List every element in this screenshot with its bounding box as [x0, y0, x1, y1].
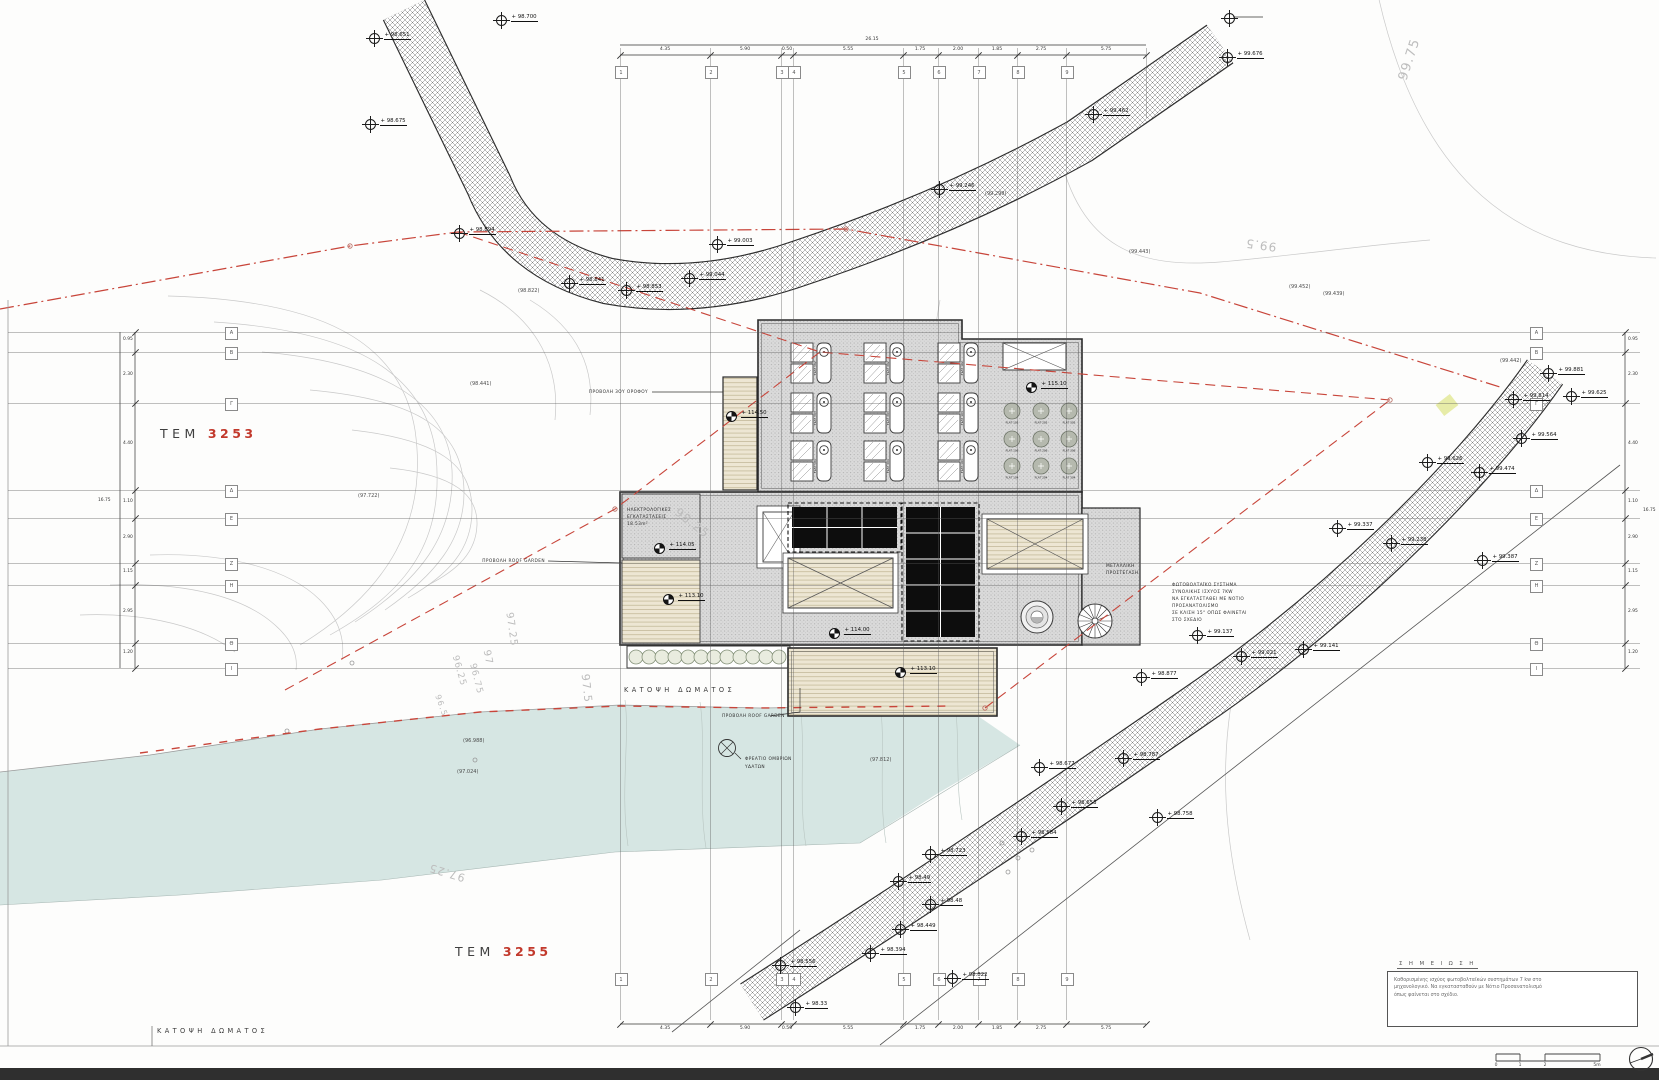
- benchmark-label: + 114.50: [741, 410, 768, 418]
- spot-elevation-marker: + 99.881: [1543, 368, 1554, 379]
- annotation-label: ΗΛΕΚΤΡΟΛΟΓΙΚΕΣ: [627, 508, 671, 513]
- pv-annotation-line: ΣΕ ΚΛΙΣΗ 15° ΟΠΩΣ ΦΑΙΝΕΤΑΙ: [1172, 611, 1247, 616]
- spot-elevation-marker: + 98.584: [1016, 831, 1027, 842]
- dimension-label: 1.15: [123, 569, 133, 574]
- spot-elevation-marker: + 98.49: [893, 876, 904, 887]
- dimension-label: 4.40: [123, 441, 133, 446]
- spot-elevation-label: + 99.676: [1237, 51, 1264, 59]
- parcel-prefix: ΤΕΜ: [455, 944, 495, 959]
- spot-elevation-label: + 99.625: [1581, 390, 1608, 398]
- ground-elevation-label: (98.822): [518, 288, 539, 294]
- dimension-total-label: 16.75: [98, 498, 111, 503]
- grid-row-bubble: Β: [225, 347, 238, 360]
- dimension-label: 0.95: [1628, 337, 1638, 342]
- grid-row-bubble: Δ: [1530, 485, 1543, 498]
- spot-elevation-label: + 98.787: [1133, 752, 1160, 760]
- spot-elevation-marker: + 98.894: [454, 228, 465, 239]
- spot-elevation-label: + 98.449: [910, 923, 937, 931]
- dimension-label: 2.30: [1628, 372, 1638, 377]
- dimension-label: 4.35: [660, 47, 670, 52]
- dimension-label: 1.10: [123, 499, 133, 504]
- grid-row-line: [8, 563, 1640, 564]
- annotation-label: ΠΡΟΒΟΛΗ ROOF GARDEN: [722, 714, 785, 719]
- ground-elevation-label: (96.988): [463, 738, 484, 744]
- grid-row-line: [8, 585, 1640, 586]
- spot-elevation-label: + 98.853: [636, 284, 663, 292]
- spot-elevation-label: + 99.238: [1401, 537, 1428, 545]
- grid-row-line: [8, 490, 1640, 491]
- grid-row-bubble: Ζ: [225, 558, 238, 571]
- spot-elevation-marker: + 99.337: [1332, 523, 1343, 534]
- contour-label: 96.25: [450, 654, 468, 687]
- grid-column-line: [1017, 48, 1018, 1020]
- parcel-prefix: ΤΕΜ: [160, 426, 200, 441]
- spot-elevation-marker: + 99.003: [712, 239, 723, 250]
- spot-elevation-marker: + 99.462: [1088, 109, 1099, 120]
- spot-elevation-marker: + 98.33: [790, 1002, 801, 1013]
- grid-column-line: [620, 48, 621, 1020]
- grid-row-line: [8, 518, 1640, 519]
- spot-elevation-label: + 98.394: [880, 947, 907, 955]
- dimension-label: 2.30: [123, 372, 133, 377]
- grid-row-bubble: Ε: [1530, 513, 1543, 526]
- spot-elevation-label: + 99.387: [1492, 554, 1519, 562]
- plan-title: ΚΑΤΟΨΗ ΔΩΜΑΤΟΣ: [624, 686, 735, 694]
- note-line: μηχανολογικό. Να εγκατασταθούν με Νότιο …: [1394, 984, 1631, 991]
- grid-row-bubble: Α: [1530, 327, 1543, 340]
- dimension-label: 2.00: [953, 1026, 963, 1031]
- spot-elevation-label: + 98.653: [1071, 800, 1098, 808]
- spot-elevation-label: + 99.137: [1207, 629, 1234, 637]
- labels-overlay: 112233445566778899ΑΑΒΒΓΓΔΔΕΕΖΖΗΗΘΘΙΙ4.35…: [0, 0, 1659, 1080]
- dimension-label: 5.55: [843, 47, 853, 52]
- spot-elevation-marker: + 99.474: [1474, 467, 1485, 478]
- grid-row-line: [8, 332, 1640, 333]
- spot-elevation-label: + 98.822: [962, 972, 989, 980]
- grid-column-bubble: 9: [1061, 973, 1074, 986]
- annotation-label: ΦΡΕΑΤΙΟ ΟΜΒΡΙΩΝ: [745, 757, 792, 762]
- spot-elevation-label: + 99.626: [1437, 456, 1464, 464]
- spot-elevation-marker: + 99.137: [1192, 630, 1203, 641]
- grid-column-bubble: 4: [788, 973, 801, 986]
- ground-elevation-label: (99.443): [1129, 249, 1150, 255]
- spot-elevation-label: + 98.48: [940, 898, 964, 906]
- pv-annotation-line: ΦΩΤΟΒΟΛΤΑΪΚΟ ΣΥΣΤΗΜΑ: [1172, 583, 1237, 588]
- grid-column-bubble: 1: [615, 973, 628, 986]
- spot-elevation-label: + 98.700: [511, 14, 538, 22]
- spot-elevation-label: + 98.49: [908, 875, 932, 883]
- annotation-label: ΠΡΟΣΤΕΓΑΣΗ: [1106, 571, 1139, 576]
- ground-elevation-label: (99.442): [1500, 358, 1521, 364]
- spot-elevation-marker: + 98.394: [865, 948, 876, 959]
- spot-elevation-marker: + 99.814: [1508, 394, 1519, 405]
- dimension-label: 1.75: [915, 1026, 925, 1031]
- grid-row-bubble: Ι: [225, 663, 238, 676]
- dimension-label: 2.95: [123, 609, 133, 614]
- note-line: Καθορισμένης ισχύος φωτοβολταϊκών συστημ…: [1394, 977, 1631, 984]
- grid-column-line: [1146, 48, 1147, 118]
- grid-row-bubble: Η: [225, 580, 238, 593]
- dimension-label: 5.90: [740, 47, 750, 52]
- pv-annotation-line: ΣΥΝΟΛΙΚΗΣ ΙΣΧΥΟΣ 7KW: [1172, 590, 1233, 595]
- contour-label: 97: [481, 649, 495, 666]
- grid-row-bubble: Θ: [1530, 638, 1543, 651]
- spot-elevation-marker: + 98.700: [496, 15, 507, 26]
- spot-elevation-marker: + 98.723: [925, 849, 936, 860]
- grid-column-line: [1066, 48, 1067, 1020]
- benchmark-marker: + 115.10: [1026, 382, 1037, 393]
- spot-elevation-label: + 99.003: [727, 238, 754, 246]
- grid-column-bubble: 5: [898, 66, 911, 79]
- spot-elevation-marker: + 98.841: [564, 278, 575, 289]
- ground-elevation-label: (99.439): [1323, 291, 1344, 297]
- spot-elevation-label: + 98.894: [469, 227, 496, 235]
- dimension-label: 5.55: [843, 1026, 853, 1031]
- spot-elevation-label: + 99.462: [1103, 108, 1130, 116]
- grid-column-bubble: 8: [1012, 973, 1025, 986]
- spot-elevation-marker: + 98.675: [365, 119, 376, 130]
- dim-tick: [707, 1021, 714, 1028]
- spot-elevation-label: + 99.474: [1489, 466, 1516, 474]
- grid-column-line: [978, 48, 979, 1020]
- note-title: Σ Η Μ Ε Ι Ω Σ Η: [1397, 961, 1478, 969]
- grid-row-bubble: Θ: [225, 638, 238, 651]
- grid-row-bubble: Ζ: [1530, 558, 1543, 571]
- dimension-label: 4.40: [1628, 441, 1638, 446]
- spot-elevation-label: + 98.675: [380, 118, 407, 126]
- note-line: όπως φαίνεται στο σχέδιο.: [1394, 992, 1631, 999]
- scale-tick-label: 5m: [1593, 1063, 1600, 1068]
- pv-annotation-line: ΠΡΟΣΑΝΑΤΟΛΙΣΜΟ: [1172, 604, 1219, 609]
- contour-label: 99.75: [1396, 37, 1424, 83]
- spot-elevation-marker: + 98.556: [775, 960, 786, 971]
- spot-elevation-label: + 98.556: [790, 959, 817, 967]
- spot-elevation-marker: + 99.238: [1386, 538, 1397, 549]
- note-box: Σ Η Μ Ε Ι Ω Σ Η Καθορισμένης ισχύος φωτο…: [1387, 950, 1638, 1027]
- spot-elevation-marker: + 99.021: [1236, 651, 1247, 662]
- grid-column-line: [710, 48, 711, 1020]
- dimension-label: 1.20: [123, 650, 133, 655]
- benchmark-marker: + 113.10: [663, 594, 674, 605]
- annotation-label: ΠΡΟΒΟΛΗ ROOF GARDEN: [482, 559, 545, 564]
- spot-elevation-label: + 98.677: [1049, 761, 1076, 769]
- grid-column-line: [793, 48, 794, 1020]
- spot-elevation-label: + 99.881: [1558, 367, 1585, 375]
- spot-elevation-label: + 98.723: [940, 848, 967, 856]
- contour-label: 96.5: [433, 693, 449, 717]
- annotation-label: 18.53m²: [627, 522, 648, 527]
- benchmark-label: + 115.10: [1041, 381, 1068, 389]
- contour-label: 97.5: [579, 673, 595, 703]
- scale-tick-label: 1: [1519, 1063, 1522, 1068]
- spot-elevation-label: + 99.246: [949, 183, 976, 191]
- spot-elevation-label: + 99.337: [1347, 522, 1374, 530]
- grid-column-bubble: 6: [933, 973, 946, 986]
- dim-tick: [935, 1021, 942, 1028]
- grid-row-line: [8, 352, 1640, 353]
- benchmark-label: + 113.10: [678, 593, 705, 601]
- spot-elevation-marker: [1224, 13, 1235, 24]
- spot-elevation-label: + 98.651: [384, 32, 411, 40]
- dimension-label: 1.20: [1628, 650, 1638, 655]
- dimension-total-label: 16.75: [1643, 508, 1656, 513]
- dim-tick: [975, 1021, 982, 1028]
- annotation-label: ΕΓΚΑΤΑΣΤΑΣΕΙΣ: [627, 515, 666, 520]
- spot-elevation-marker: + 99.141: [1298, 644, 1309, 655]
- spot-elevation-label: + 98.877: [1151, 671, 1178, 679]
- grid-row-bubble: Α: [225, 327, 238, 340]
- annotation-label: ΜΕΤΑΛΛΙΚΗ: [1106, 564, 1135, 569]
- parcel-number: 3253: [208, 426, 257, 441]
- dimension-label: 2.90: [123, 535, 133, 540]
- ground-elevation-label: (99.299): [985, 191, 1006, 197]
- spot-elevation-marker: + 98.48: [925, 899, 936, 910]
- spot-elevation-label: + 99.814: [1523, 393, 1550, 401]
- grid-row-bubble: Β: [1530, 347, 1543, 360]
- grid-column-line: [781, 48, 782, 1020]
- dimension-label: 1.15: [1628, 569, 1638, 574]
- spot-elevation-marker: + 99.625: [1566, 391, 1577, 402]
- annotation-label: ΠΡΟΒΟΛΗ 3ΟΥ ΟΡΟΦΟΥ: [589, 390, 648, 395]
- dimension-label: 2.90: [1628, 535, 1638, 540]
- grid-column-bubble: 1: [615, 66, 628, 79]
- benchmark-marker: + 114.00: [829, 628, 840, 639]
- spot-elevation-label: + 98.33: [805, 1001, 829, 1009]
- dim-tick: [617, 1021, 624, 1028]
- spot-elevation-label: + 99.021: [1251, 650, 1278, 658]
- scale-tick-label: 2: [1544, 1063, 1547, 1068]
- grid-column-bubble: 7: [973, 66, 986, 79]
- benchmark-marker: + 113.10: [895, 667, 906, 678]
- dimension-label: 5.75: [1101, 1026, 1111, 1031]
- grid-column-bubble: 6: [933, 66, 946, 79]
- dimension-label: 2.00: [953, 47, 963, 52]
- grid-column-bubble: 4: [788, 66, 801, 79]
- plan-title: ΚΑΤΟΨΗ ΔΩΜΑΤΟΣ: [157, 1027, 268, 1035]
- parcel-label: ΤΕΜ3255: [455, 944, 552, 959]
- dimension-label: 5.75: [1101, 47, 1111, 52]
- grid-row-bubble: Η: [1530, 580, 1543, 593]
- contour-label: 99.5: [1244, 236, 1277, 254]
- dim-tick: [900, 1021, 907, 1028]
- ground-elevation-label: (99.452): [1289, 284, 1310, 290]
- grid-row-line: [8, 668, 1640, 669]
- note-body: Καθορισμένης ισχύος φωτοβολταϊκών συστημ…: [1387, 971, 1638, 1027]
- spot-elevation-marker: + 99.626: [1422, 457, 1433, 468]
- grid-column-bubble: 8: [1012, 66, 1025, 79]
- spot-elevation-marker: + 98.653: [1056, 801, 1067, 812]
- ground-elevation-label: (97.024): [457, 769, 478, 775]
- scale-tick-label: 0: [1495, 1063, 1498, 1068]
- spot-elevation-label: + 99.564: [1531, 432, 1558, 440]
- ground-elevation-label: (97.722): [358, 493, 379, 499]
- contour-label: 97.25: [427, 861, 467, 884]
- ground-elevation-label: (97.812): [870, 757, 891, 763]
- dimension-label: 1.85: [992, 1026, 1002, 1031]
- spot-elevation-marker: + 99.676: [1222, 52, 1233, 63]
- spot-elevation-marker: + 99.564: [1516, 433, 1527, 444]
- benchmark-label: + 114.05: [669, 542, 696, 550]
- contour-label: 98.25: [672, 505, 712, 541]
- spot-elevation-marker: + 98.822: [947, 973, 958, 984]
- grid-column-bubble: 2: [705, 66, 718, 79]
- dimension-label: 1.10: [1628, 499, 1638, 504]
- spot-elevation-marker: + 99.387: [1477, 555, 1488, 566]
- benchmark-marker: + 114.50: [726, 411, 737, 422]
- spot-elevation-marker: + 98.758: [1152, 812, 1163, 823]
- dimension-total-label: 26.15: [865, 37, 878, 42]
- spot-elevation-label: + 98.584: [1031, 830, 1058, 838]
- dimension-label: 1.75: [915, 47, 925, 52]
- grid-row-bubble: Ι: [1530, 663, 1543, 676]
- dimension-label: 2.75: [1036, 47, 1046, 52]
- dim-tick: [1014, 1021, 1021, 1028]
- dimension-label: 1.85: [992, 47, 1002, 52]
- grid-row-bubble: Ε: [225, 513, 238, 526]
- grid-row-bubble: Γ: [225, 398, 238, 411]
- grid-column-line: [903, 48, 904, 1020]
- benchmark-label: + 114.00: [844, 627, 871, 635]
- spot-elevation-marker: + 98.651: [369, 33, 380, 44]
- spot-elevation-label: + 98.841: [579, 277, 606, 285]
- ground-elevation-label: (98.441): [470, 381, 491, 387]
- spot-elevation-marker: + 98.449: [895, 924, 906, 935]
- grid-row-line: [8, 403, 1640, 404]
- dim-tick: [1063, 1021, 1070, 1028]
- site-plan-sheet: { "note_box": { "title": "Σ Η Μ Ε Ι Ω Σ …: [0, 0, 1659, 1080]
- spot-elevation-label: + 98.758: [1167, 811, 1194, 819]
- grid-column-bubble: 5: [898, 973, 911, 986]
- spot-elevation-label: + 99.141: [1313, 643, 1340, 651]
- parcel-label: ΤΕΜ3253: [160, 426, 257, 441]
- dimension-label: 5.90: [740, 1026, 750, 1031]
- grid-column-bubble: 2: [705, 973, 718, 986]
- spot-elevation-marker: + 98.853: [621, 285, 632, 296]
- benchmark-label: + 113.10: [910, 666, 937, 674]
- dim-tick: [1143, 1021, 1150, 1028]
- spot-elevation-marker: + 99.246: [934, 184, 945, 195]
- dimension-label: 2.75: [1036, 1026, 1046, 1031]
- grid-row-line: [8, 643, 1640, 644]
- annotation-label: ΥΔΑΤΩΝ: [745, 765, 765, 770]
- dimension-label: 4.35: [660, 1026, 670, 1031]
- spot-elevation-marker: + 98.877: [1136, 672, 1147, 683]
- dimension-label: 0.95: [123, 337, 133, 342]
- benchmark-marker: + 114.05: [654, 543, 665, 554]
- dimension-label: 0.50: [782, 47, 792, 52]
- grid-row-bubble: Δ: [225, 485, 238, 498]
- spot-elevation-label: + 99.044: [699, 272, 726, 280]
- grid-column-bubble: 9: [1061, 66, 1074, 79]
- parcel-number: 3255: [503, 944, 552, 959]
- dimension-label: 0.50: [782, 1026, 792, 1031]
- spot-elevation-marker: + 98.677: [1034, 762, 1045, 773]
- spot-elevation-marker: + 98.787: [1118, 753, 1129, 764]
- pv-annotation-line: ΣΤΟ ΣΧΕΔΙΟ: [1172, 618, 1202, 623]
- dimension-label: 2.95: [1628, 609, 1638, 614]
- pv-annotation-line: ΝΑ ΕΓΚΑΤΑΣΤΑΘΕΙ ΜΕ ΝΟΤΙΟ: [1172, 597, 1244, 602]
- spot-elevation-marker: + 99.044: [684, 273, 695, 284]
